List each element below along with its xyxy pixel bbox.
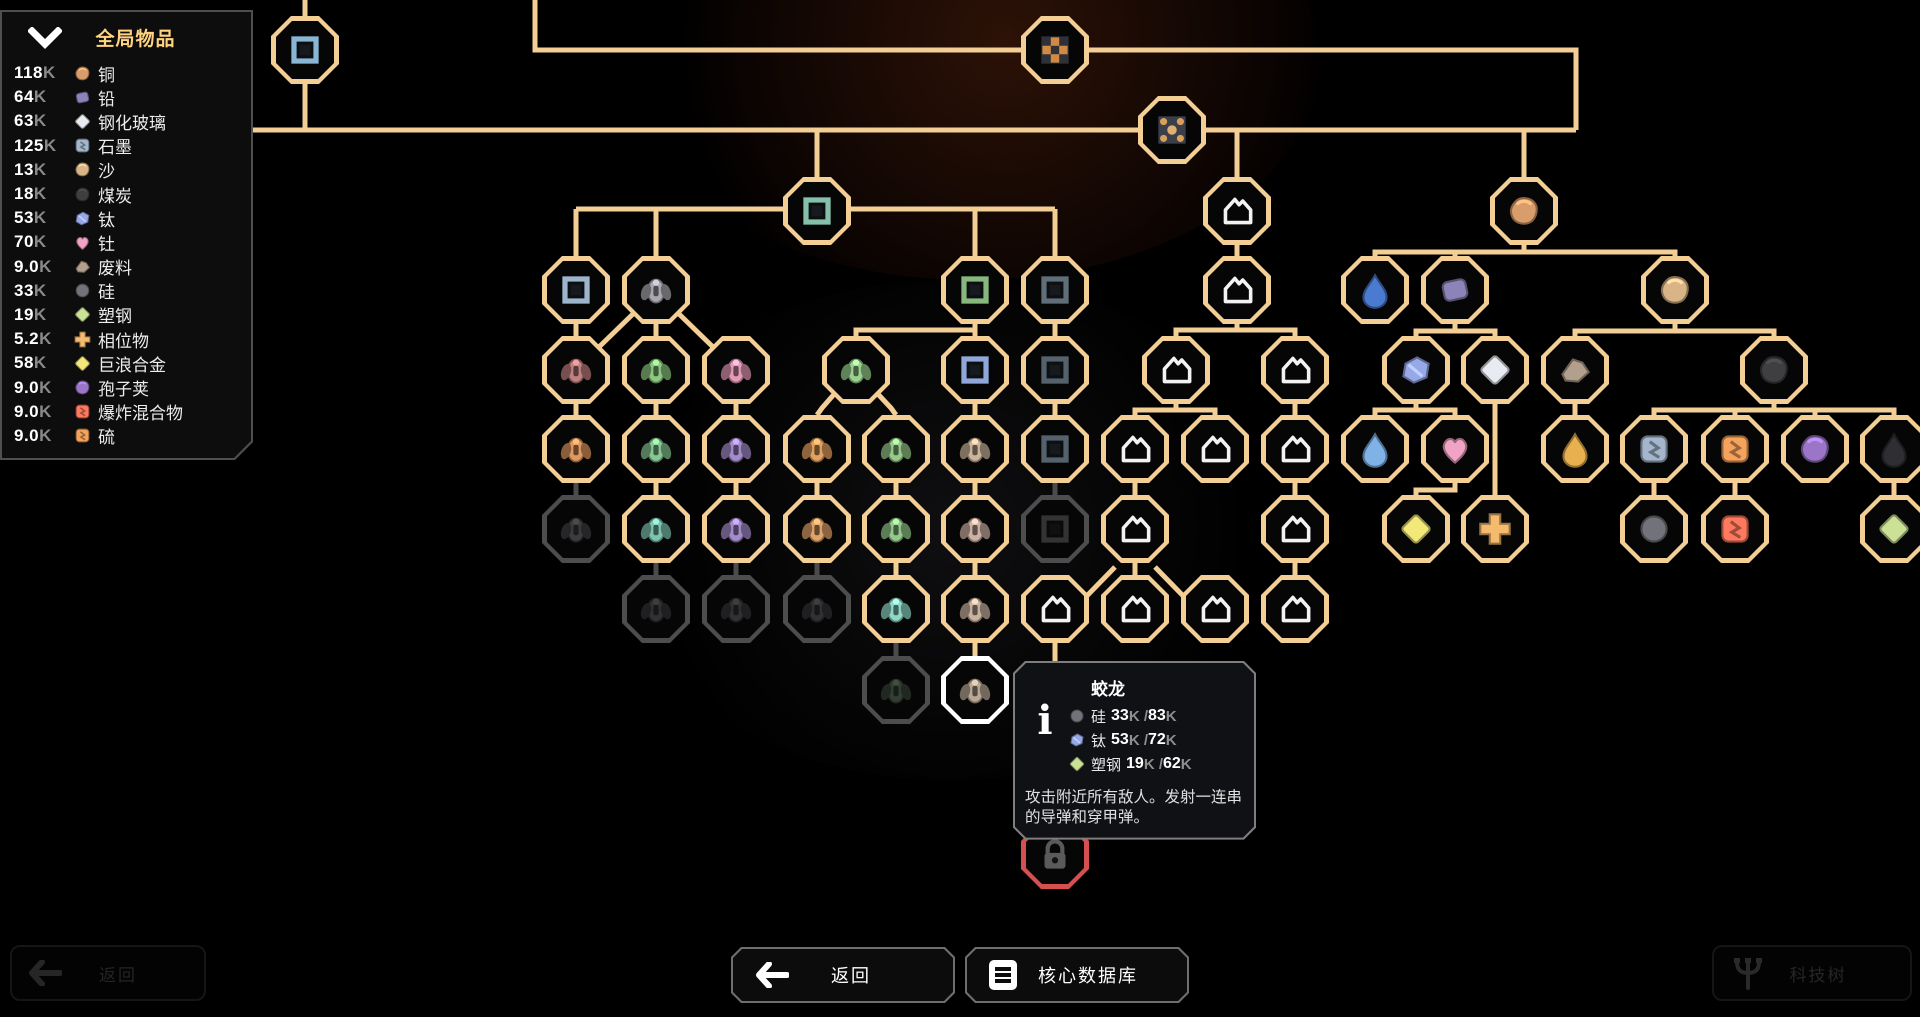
circle-icon xyxy=(1067,706,1087,726)
item-name: 废料 xyxy=(98,254,132,279)
sector-icon xyxy=(1114,428,1156,470)
unit-icon xyxy=(635,428,677,470)
item-row[interactable]: 33K硅 xyxy=(0,279,253,303)
unit-node[interactable] xyxy=(542,495,610,563)
cross-icon xyxy=(1474,508,1516,550)
item-icon-石墨 xyxy=(72,135,98,157)
block-node[interactable] xyxy=(542,256,610,324)
block-node[interactable] xyxy=(1138,96,1206,164)
unit-icon xyxy=(875,508,917,550)
item-name: 硫 xyxy=(98,423,115,448)
unit-node[interactable] xyxy=(862,415,930,483)
frame-icon xyxy=(284,29,326,71)
unit-node[interactable] xyxy=(862,575,930,643)
item-icon-铅 xyxy=(72,86,98,108)
item-icon-硫 xyxy=(72,425,98,447)
unit-icon xyxy=(555,428,597,470)
item-node-graphite[interactable] xyxy=(1620,415,1688,483)
chevron-down-icon[interactable] xyxy=(28,27,62,49)
item-row[interactable]: 19K塑钢 xyxy=(0,303,253,327)
zig-icon xyxy=(72,135,93,156)
unit-icon xyxy=(555,349,597,391)
tech-tree-trident-icon xyxy=(1730,955,1766,991)
heart-icon xyxy=(1434,428,1476,470)
item-amount: 33K xyxy=(14,281,72,301)
diamond-icon xyxy=(72,304,93,325)
unit-node[interactable] xyxy=(702,495,770,563)
tooltip-title: 蛟龙 xyxy=(1091,675,1246,700)
requirement-row: 钛53K / 72K xyxy=(1067,728,1246,752)
item-node-surge[interactable] xyxy=(1382,495,1450,563)
diamond-icon xyxy=(1873,508,1915,550)
sector-node[interactable] xyxy=(1261,415,1329,483)
item-node-sand[interactable] xyxy=(1641,256,1709,324)
item-name: 孢子荚 xyxy=(98,375,149,400)
item-amount: 58K xyxy=(14,353,72,373)
requirement-row: 硅33K / 83K xyxy=(1067,704,1246,728)
sector-icon xyxy=(1274,428,1316,470)
frame-icon xyxy=(555,269,597,311)
sector-icon xyxy=(1155,349,1197,391)
panel-header: 全局物品 xyxy=(0,10,253,61)
item-name: 塑钢 xyxy=(98,302,132,327)
item-icon-巨浪合金 xyxy=(72,352,98,374)
requirement-icon xyxy=(1067,754,1091,774)
item-amount: 53K xyxy=(14,208,72,228)
item-row[interactable]: 9.0K硫 xyxy=(0,424,253,448)
unit-node[interactable] xyxy=(783,495,851,563)
sector-node[interactable] xyxy=(1181,575,1249,643)
item-icon-塑钢 xyxy=(72,304,98,326)
block-node[interactable] xyxy=(1021,336,1089,404)
item-row[interactable]: 58K巨浪合金 xyxy=(0,351,253,375)
zig-icon xyxy=(1633,428,1675,470)
core-database-label: 核心数据库 xyxy=(1019,962,1187,988)
item-name: 钍 xyxy=(98,230,115,255)
unit-node[interactable] xyxy=(622,256,690,324)
liquid-node-cryofluid[interactable] xyxy=(1341,415,1409,483)
item-icon-煤炭 xyxy=(72,183,98,205)
item-node-coal[interactable] xyxy=(1740,336,1808,404)
item-icon-相位物 xyxy=(72,328,98,350)
tree-nodes xyxy=(0,0,1920,1017)
heart-icon xyxy=(72,232,93,253)
unit-icon xyxy=(715,428,757,470)
item-node-titanium[interactable] xyxy=(1382,336,1450,404)
arrow-left-icon xyxy=(28,960,62,986)
block-node[interactable] xyxy=(271,16,339,84)
item-row[interactable]: 118K铜 xyxy=(0,61,253,85)
database-list-icon xyxy=(987,958,1019,992)
sector-icon xyxy=(1114,508,1156,550)
arrow-left-icon xyxy=(755,962,789,988)
item-name: 钢化玻璃 xyxy=(98,109,166,134)
item-node-metaglass[interactable] xyxy=(1461,336,1529,404)
item-row[interactable]: 18K煤炭 xyxy=(0,182,253,206)
frame-icon xyxy=(1034,428,1076,470)
diamond-icon xyxy=(72,353,93,374)
diamond-icon xyxy=(1474,349,1516,391)
unit-icon xyxy=(954,508,996,550)
square-icon xyxy=(72,87,93,108)
item-name: 煤炭 xyxy=(98,182,132,207)
unit-node[interactable] xyxy=(941,495,1009,563)
unit-icon xyxy=(796,428,838,470)
item-row[interactable]: 9.0K孢子荚 xyxy=(0,375,253,399)
item-amount: 70K xyxy=(14,232,72,252)
requirement-name: 硅 xyxy=(1091,706,1106,727)
item-amount: 9.0K xyxy=(14,426,72,446)
corner-back-button[interactable]: 返回 xyxy=(10,945,206,1001)
frame-icon xyxy=(1034,269,1076,311)
sector-icon xyxy=(1194,588,1236,630)
liquid-node-water[interactable] xyxy=(1341,256,1409,324)
unit-icon xyxy=(954,588,996,630)
corner-tree-label: 科技树 xyxy=(1766,961,1910,986)
zig-icon xyxy=(1714,428,1756,470)
crystal-icon xyxy=(1067,730,1087,750)
unit-icon xyxy=(715,588,757,630)
sector-node[interactable] xyxy=(1021,575,1089,643)
blob-icon xyxy=(72,184,93,205)
item-amount: 63K xyxy=(14,111,72,131)
item-icon-钍 xyxy=(72,231,98,253)
back-button[interactable]: 返回 xyxy=(731,947,955,1003)
sector-node[interactable] xyxy=(1142,336,1210,404)
crossblock-icon xyxy=(1034,29,1076,71)
square-icon xyxy=(1434,269,1476,311)
item-row[interactable]: 64K铅 xyxy=(0,85,253,109)
item-amount: 13K xyxy=(14,160,72,180)
sector-node[interactable] xyxy=(1203,256,1271,324)
circle-icon xyxy=(1633,508,1675,550)
diamond-icon xyxy=(72,111,93,132)
bottom-toolbar: 返回 核心数据库 xyxy=(731,947,1189,1003)
item-amount: 118K xyxy=(14,63,72,83)
requirement-icon xyxy=(1067,706,1091,726)
item-node-pyratite[interactable] xyxy=(1701,415,1769,483)
item-amount: 64K xyxy=(14,87,72,107)
sector-icon xyxy=(1216,269,1258,311)
item-name: 相位物 xyxy=(98,327,149,352)
item-amount: 5.2K xyxy=(14,329,72,349)
item-row[interactable]: 13K沙 xyxy=(0,158,253,182)
sector-icon xyxy=(1216,190,1258,232)
item-icon-废料 xyxy=(72,256,98,278)
item-node-spore[interactable] xyxy=(1781,415,1849,483)
block-node[interactable] xyxy=(1021,16,1089,84)
unit-node[interactable] xyxy=(702,415,770,483)
unit-icon xyxy=(635,588,677,630)
unit-icon xyxy=(954,669,996,711)
tooltip-requirements: 硅33K / 83K钛53K / 72K塑钢19K / 62K xyxy=(1067,704,1246,776)
cross-icon xyxy=(72,329,93,350)
drop-icon xyxy=(1354,428,1396,470)
item-amount: 9.0K xyxy=(14,257,72,277)
requirement-name: 塑钢 xyxy=(1091,754,1121,775)
unit-node[interactable] xyxy=(622,495,690,563)
sector-node[interactable] xyxy=(1101,575,1169,643)
unit-icon xyxy=(555,508,597,550)
unit-node[interactable] xyxy=(702,336,770,404)
back-button-label: 返回 xyxy=(789,962,953,988)
item-name: 钛 xyxy=(98,206,115,231)
unit-node[interactable] xyxy=(941,575,1009,643)
unit-node[interactable] xyxy=(622,336,690,404)
liquid-node-oil[interactable] xyxy=(1860,415,1920,483)
item-amount: 125K xyxy=(14,136,72,156)
dots-icon xyxy=(1151,109,1193,151)
unit-node[interactable] xyxy=(822,336,890,404)
frame-icon xyxy=(1034,508,1076,550)
blob-icon xyxy=(72,377,93,398)
item-node-lead[interactable] xyxy=(1421,256,1489,324)
item-node-copper[interactable] xyxy=(1490,177,1558,245)
item-amount: 19K xyxy=(14,305,72,325)
sector-icon xyxy=(1114,588,1156,630)
unit-node[interactable] xyxy=(542,336,610,404)
item-row[interactable]: 5.2K相位物 xyxy=(0,327,253,351)
block-node[interactable] xyxy=(783,177,851,245)
lock-icon xyxy=(1034,834,1076,876)
unit-icon xyxy=(835,349,877,391)
sector-node[interactable] xyxy=(1261,575,1329,643)
requirement-name: 钛 xyxy=(1091,730,1106,751)
blob-icon xyxy=(72,63,93,84)
item-name: 沙 xyxy=(98,157,115,182)
unit-node[interactable] xyxy=(622,415,690,483)
circle-icon xyxy=(72,280,93,301)
item-row[interactable]: 63K钢化玻璃 xyxy=(0,109,253,133)
sector-node[interactable] xyxy=(1101,495,1169,563)
tech-tree-screen: 全局物品 118K铜64K铅63K钢化玻璃125K石墨13K沙18K煤炭53K钛… xyxy=(0,0,1920,1017)
unit-icon xyxy=(875,669,917,711)
block-node[interactable] xyxy=(1021,495,1089,563)
drop-icon xyxy=(1354,269,1396,311)
sector-icon xyxy=(1274,508,1316,550)
item-node-silicon[interactable] xyxy=(1620,495,1688,563)
unit-icon xyxy=(635,269,677,311)
corner-back-label: 返回 xyxy=(62,961,204,986)
block-node[interactable] xyxy=(1021,256,1089,324)
frame-icon xyxy=(954,349,996,391)
blob-icon xyxy=(1654,269,1696,311)
item-amount: 9.0K xyxy=(14,402,72,422)
item-name: 铅 xyxy=(98,85,115,110)
item-name: 硅 xyxy=(98,278,115,303)
item-row[interactable]: 9.0K废料 xyxy=(0,255,253,279)
requirement-icon xyxy=(1067,730,1091,750)
item-icon-爆炸混合物 xyxy=(72,401,98,423)
blob-icon xyxy=(1794,428,1836,470)
zig-icon xyxy=(72,425,93,446)
sector-node[interactable] xyxy=(1101,415,1169,483)
item-name: 爆炸混合物 xyxy=(98,399,183,424)
liquid-node-slag[interactable] xyxy=(1541,415,1609,483)
requirement-row: 塑钢19K / 62K xyxy=(1067,752,1246,776)
unit-icon xyxy=(635,508,677,550)
sector-node[interactable] xyxy=(1261,336,1329,404)
unit-icon xyxy=(796,588,838,630)
global-items-panel: 全局物品 118K铜64K铅63K钢化玻璃125K石墨13K沙18K煤炭53K钛… xyxy=(0,10,253,460)
unit-node[interactable] xyxy=(941,415,1009,483)
unit-node[interactable] xyxy=(862,656,930,724)
frame-icon xyxy=(954,269,996,311)
block-node[interactable] xyxy=(941,256,1009,324)
sector-node[interactable] xyxy=(1261,495,1329,563)
node-tooltip: i 蛟龙 硅33K / 83K钛53K / 72K塑钢19K / 62K 攻击附… xyxy=(1013,661,1256,840)
blob-icon xyxy=(72,159,93,180)
sector-icon xyxy=(1274,588,1316,630)
item-name: 巨浪合金 xyxy=(98,351,166,376)
item-icon-沙 xyxy=(72,159,98,181)
unit-icon xyxy=(875,428,917,470)
drop-icon xyxy=(1873,428,1915,470)
frame-icon xyxy=(796,190,838,232)
item-icon-孢子荚 xyxy=(72,377,98,399)
item-amount: 9.0K xyxy=(14,378,72,398)
crystal-icon xyxy=(1395,349,1437,391)
item-icon-钢化玻璃 xyxy=(72,110,98,132)
sector-icon xyxy=(1194,428,1236,470)
unit-node-selected[interactable] xyxy=(941,656,1009,724)
item-icon-铜 xyxy=(72,62,98,84)
diamond-icon xyxy=(1067,754,1087,774)
blob-icon xyxy=(1753,349,1795,391)
unit-node[interactable] xyxy=(783,415,851,483)
item-row[interactable]: 125K石墨 xyxy=(0,134,253,158)
info-icon[interactable]: i xyxy=(1023,673,1067,776)
item-node-blast[interactable] xyxy=(1701,495,1769,563)
unit-node[interactable] xyxy=(862,495,930,563)
diamond-icon xyxy=(1395,508,1437,550)
item-row[interactable]: 53K钛 xyxy=(0,206,253,230)
item-name: 铜 xyxy=(98,61,115,86)
panel-title: 全局物品 xyxy=(62,24,243,51)
item-node-plastanium[interactable] xyxy=(1860,495,1920,563)
crystal-icon xyxy=(72,208,93,229)
shard-icon xyxy=(1554,349,1596,391)
unit-node[interactable] xyxy=(783,575,851,643)
zig-icon xyxy=(72,401,93,422)
blob-icon xyxy=(1503,190,1545,232)
unit-node[interactable] xyxy=(622,575,690,643)
item-icon-硅 xyxy=(72,280,98,302)
unit-icon xyxy=(715,508,757,550)
drop-icon xyxy=(1554,428,1596,470)
tooltip-description: 攻击附近所有敌人。发射一连串的导弹和穿甲弹。 xyxy=(1023,788,1246,828)
item-node-thorium[interactable] xyxy=(1421,415,1489,483)
sector-node[interactable] xyxy=(1181,415,1249,483)
core-database-button[interactable]: 核心数据库 xyxy=(965,947,1189,1003)
unit-icon xyxy=(875,588,917,630)
sector-icon xyxy=(1034,588,1076,630)
unit-icon xyxy=(635,349,677,391)
shard-icon xyxy=(72,256,93,277)
item-row[interactable]: 70K钍 xyxy=(0,230,253,254)
unit-node[interactable] xyxy=(542,415,610,483)
unit-node[interactable] xyxy=(702,575,770,643)
sector-icon xyxy=(1274,349,1316,391)
sector-node[interactable] xyxy=(1203,177,1271,245)
corner-tech-tree-button[interactable]: 科技树 xyxy=(1712,945,1912,1001)
unit-icon xyxy=(954,428,996,470)
frame-icon xyxy=(1034,349,1076,391)
items-list: 118K铜64K铅63K钢化玻璃125K石墨13K沙18K煤炭53K钛70K钍9… xyxy=(0,61,253,448)
item-name: 石墨 xyxy=(98,133,132,158)
item-icon-钛 xyxy=(72,207,98,229)
unit-icon xyxy=(796,508,838,550)
block-node[interactable] xyxy=(941,336,1009,404)
block-node[interactable] xyxy=(1021,415,1089,483)
item-row[interactable]: 9.0K爆炸混合物 xyxy=(0,400,253,424)
unit-icon xyxy=(715,349,757,391)
zig-icon xyxy=(1714,508,1756,550)
item-amount: 18K xyxy=(14,184,72,204)
item-node-scrap[interactable] xyxy=(1541,336,1609,404)
item-node-phase[interactable] xyxy=(1461,495,1529,563)
